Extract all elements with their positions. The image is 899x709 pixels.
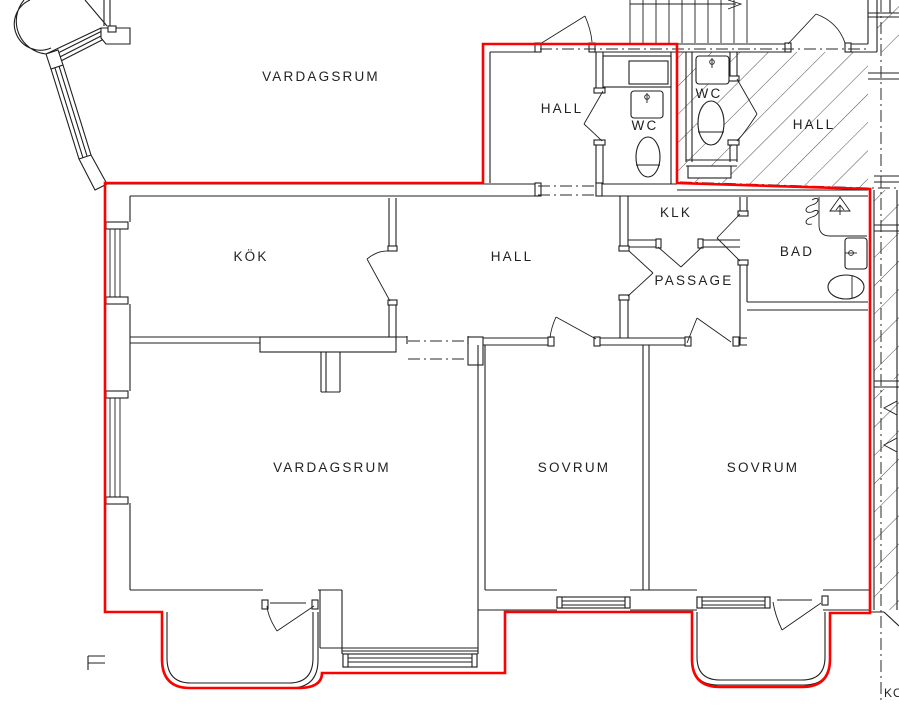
sink-icon [696,56,729,84]
staircase [630,0,747,43]
door-swing [540,16,592,44]
door-swing [717,214,740,261]
window-bay-south [343,654,477,667]
room-label-sovrum-2: SOVRUM [727,460,799,475]
window-left-2 [106,391,128,504]
room-label-sovrum-1: SOVRUM [538,460,610,475]
room-label-hall-top: HALL [541,101,584,116]
wc1-counter [603,56,671,87]
balconies [162,612,830,688]
room-label-kok: KÖK [233,249,268,264]
windows [106,222,770,667]
room-label-vardagsrum-bottom: VARDAGSRUM [273,460,391,475]
bay-window [14,0,130,190]
stair-direction-arrow-icon [728,0,741,9]
door-swing [267,603,314,631]
door-swing [628,251,653,296]
door-swing [773,600,821,630]
window-sovrum-2 [697,597,770,608]
door-swing [788,14,845,44]
toilet-icon [828,275,864,299]
shower-screen [819,197,867,236]
supply-air-triangle-icon [830,197,850,215]
room-label-hall-stairwell: HALL [793,117,836,132]
room-label-vardagsrum-top: VARDAGSRUM [262,69,380,84]
window-sovrum-1 [557,597,630,608]
door-swing [687,318,731,343]
toilet-icon [698,101,724,145]
window-left-1 [106,222,128,304]
room-label-bad: BAD [780,244,814,259]
door-swing [658,247,702,267]
room-label-wc-2: WC [696,86,723,101]
toilet-icon [636,137,660,177]
sink-icon [845,238,867,269]
floor-plan-svg: VARDAGSRUM HALL WC WC HALL KÖK HALL KLK … [0,0,899,709]
room-label-wc-1: WC [632,118,659,133]
floor-plan: VARDAGSRUM HALL WC WC HALL KÖK HALL KLK … [0,0,899,709]
sink-icon [631,91,663,118]
room-label-passage: PASSAGE [655,273,734,288]
door-swing [367,251,390,301]
edge-text-kon: KON [884,686,899,700]
door-swing [584,91,603,141]
radiator-coil-icon [806,198,818,224]
room-label-hall-mid: HALL [491,249,534,264]
room-label-klk: KLK [660,205,692,220]
door-swing [550,317,596,339]
